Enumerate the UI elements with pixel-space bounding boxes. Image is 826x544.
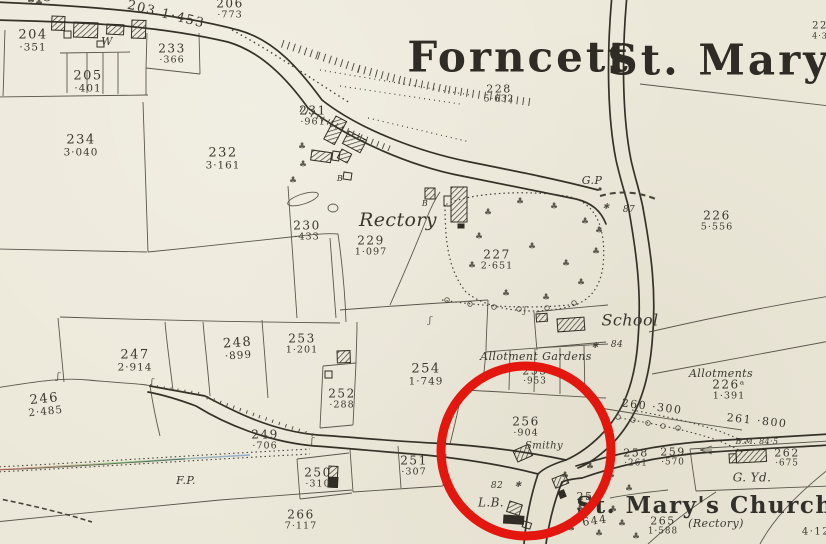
- label-school: School: [601, 313, 658, 330]
- label-rectory-paren: (Rectory): [688, 518, 744, 530]
- boundary-marker-1: ✱: [603, 203, 610, 211]
- label-well-w: W: [101, 36, 113, 48]
- parcel-251: 251·307: [400, 455, 427, 478]
- map-labels: ForncettSt. MarySt. Mary's Church204·351…: [0, 0, 826, 544]
- parcel-205: 205·401: [73, 70, 102, 95]
- parcel-246: 2462·485: [26, 391, 63, 419]
- parcel-204: 204·351: [18, 29, 47, 54]
- gate-mark-5: ʃ: [524, 307, 526, 317]
- parcel-253: 2531·201: [286, 333, 318, 356]
- parcel-232: 2323·161: [206, 147, 241, 172]
- parcel-233: 233·366: [158, 43, 185, 66]
- label-smithy: Smithy: [525, 442, 563, 453]
- parcel-259: 259·570: [660, 447, 686, 468]
- boundary-marker-2: ✱: [592, 342, 599, 350]
- parcel-22x-partial: 224·3: [812, 21, 826, 40]
- gate-mark-3: ʃ: [311, 438, 313, 448]
- gate-mark-4: ʃ: [429, 317, 431, 327]
- os-map-forncett-st-mary: ♣♣♣♣♣♣♣♣♣♣♣♣♣♣♣♣♣♣♣♣♣♣♣♣♣♣♣♣♣♣♣ Forncett…: [0, 0, 826, 544]
- label-lb: L.B.: [478, 497, 504, 510]
- parcel-262: 262·675: [774, 448, 800, 469]
- parcel-257-partial: 25: [577, 491, 594, 503]
- parcel-229: 2291·097: [355, 235, 387, 258]
- spot-height-87: 87: [623, 206, 635, 216]
- parcel-254: 2541·749: [409, 363, 444, 388]
- parcel-247: 2472·914: [118, 349, 153, 374]
- parcel-203: 203 1·453: [126, 0, 207, 31]
- label-allotment-gardens: Allotment Gardens: [480, 351, 592, 363]
- parcel-265: 2651·588: [648, 516, 678, 537]
- label-rectory: Rectory: [359, 210, 437, 230]
- parcel-266: 2667·117: [285, 509, 317, 532]
- parcel-249: 249·706: [251, 429, 278, 452]
- label-b-2: B: [422, 200, 428, 208]
- parcel-255: 255·953: [522, 366, 548, 387]
- parcel-228: 2285·632: [484, 84, 514, 105]
- title-st-mary: St. Mary: [607, 39, 826, 84]
- parcel-261: 261 ·800: [726, 412, 788, 430]
- label-g-yd: G. Yd.: [733, 472, 772, 485]
- parcel-248: 248·899: [223, 336, 254, 363]
- title-forncett: Forncett: [407, 36, 630, 81]
- benchmark-bm-845: B.M. 84·5: [735, 438, 778, 446]
- parcel-258: 258·261: [623, 448, 649, 469]
- parcel-260: 260 ·300: [621, 397, 683, 416]
- spot-height-82: 82: [491, 482, 503, 492]
- label-b-1: B: [337, 175, 343, 183]
- spot-height-84: 84: [611, 341, 623, 351]
- label-gp: G.P: [582, 175, 603, 187]
- parcel-226: 2265·556: [701, 210, 733, 233]
- parcel-226a: 226ᵃ1·391: [712, 379, 746, 402]
- parcel-partial-412: 4·12: [802, 528, 826, 539]
- label-fp: F.P.: [176, 475, 196, 487]
- parcel-234: 2343·040: [64, 134, 99, 159]
- boundary-marker-3: ✱: [515, 481, 522, 489]
- parcel-257-area-partial: 644: [582, 513, 609, 528]
- parcel-230: 230·433: [293, 220, 320, 243]
- gate-mark-1: ʃ: [57, 373, 59, 383]
- parcel-206: 206·773: [216, 0, 243, 20]
- parcel-250: 250·310: [304, 467, 331, 490]
- gate-mark-2: ʃ: [151, 379, 153, 389]
- parcel-256: 256·904: [512, 416, 539, 439]
- parcel-227: 2272·651: [481, 249, 513, 272]
- label-st-marys-church: St. Mary's Church: [576, 494, 826, 518]
- parcel-252: 252·288: [328, 388, 355, 411]
- parcel-231: 231·961: [299, 105, 326, 128]
